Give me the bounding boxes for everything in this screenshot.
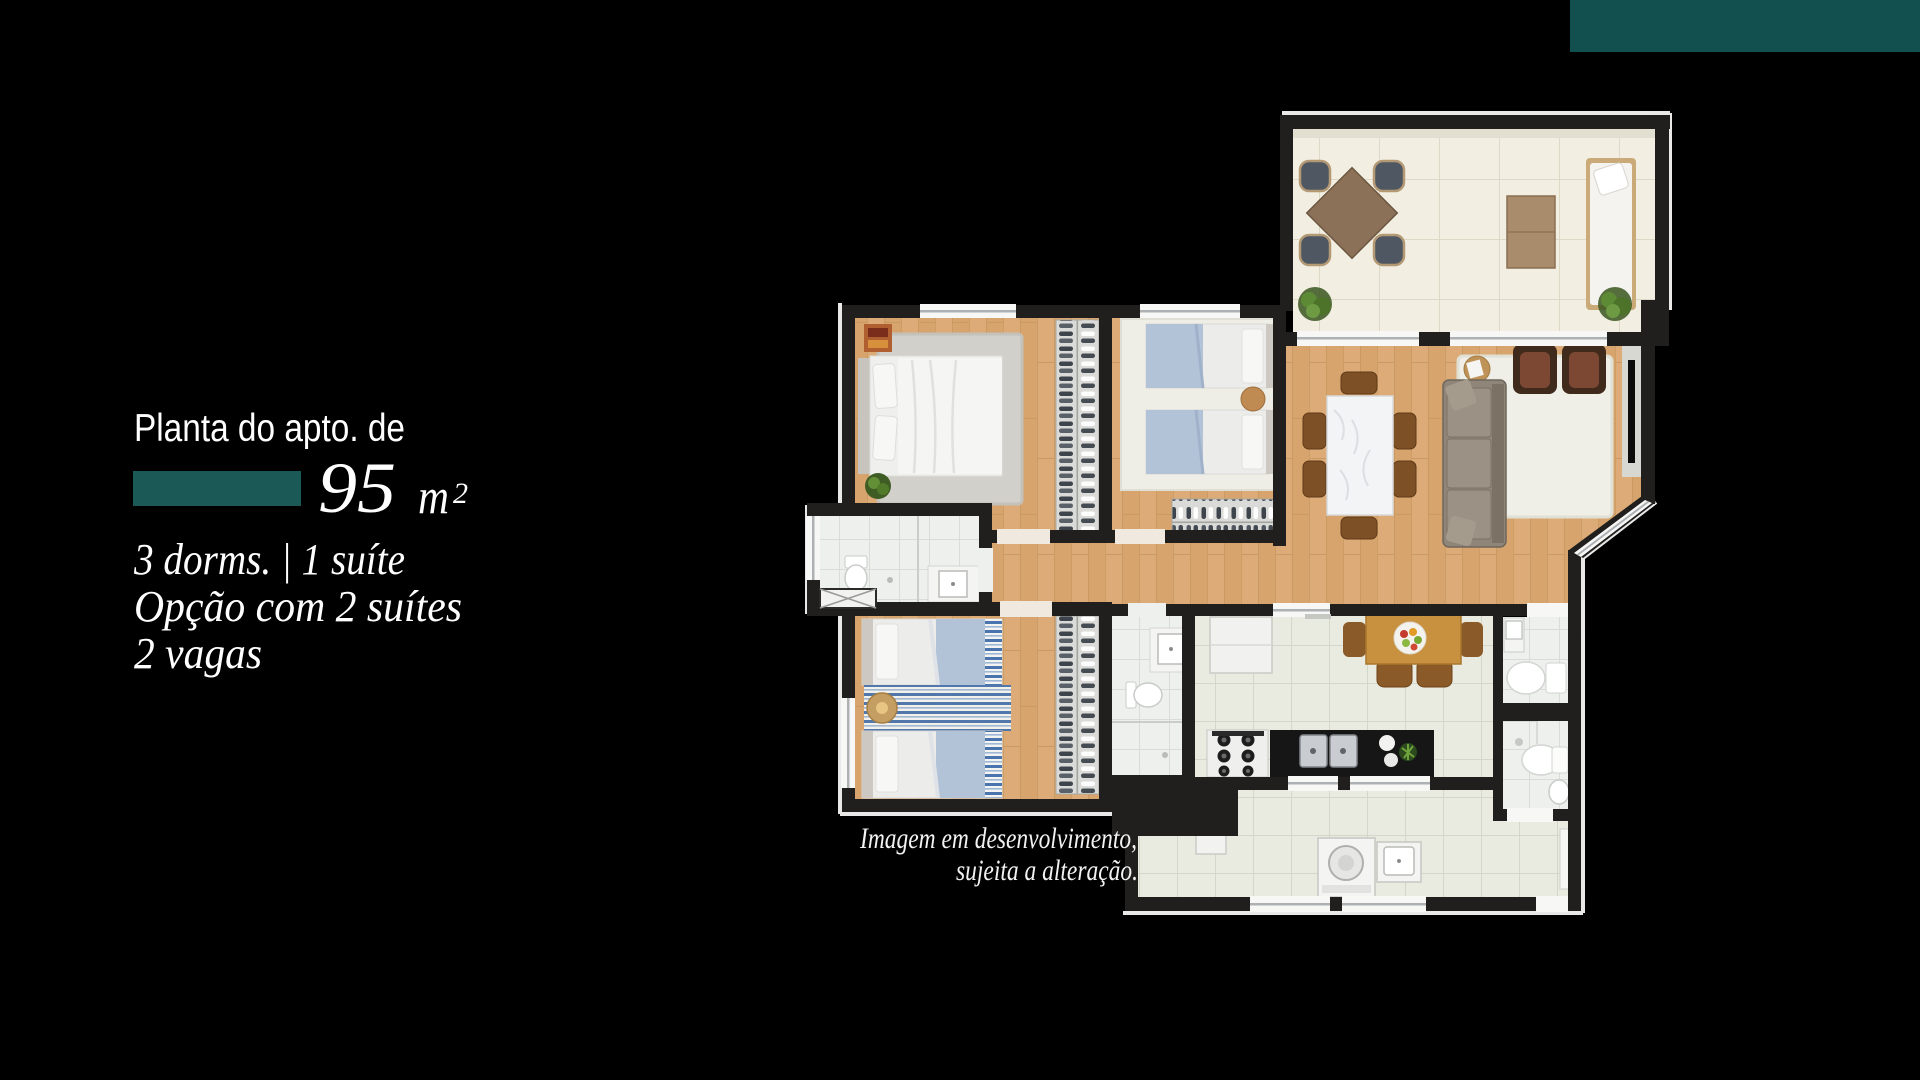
svg-text:sujeita a alteração.: sujeita a alteração. xyxy=(956,854,1138,887)
svg-text:2: 2 xyxy=(453,477,468,510)
svg-text:Imagem em desenvolvimento,: Imagem em desenvolvimento, xyxy=(859,822,1137,855)
svg-text:95: 95 xyxy=(318,448,396,528)
svg-text:3 dorms. | 1 suíte: 3 dorms. | 1 suíte xyxy=(133,535,405,584)
svg-text:2 vagas: 2 vagas xyxy=(134,629,262,678)
svg-text:Opção com 2 suítes: Opção com 2 suítes xyxy=(134,582,462,631)
svg-text:Planta do apto. de: Planta do apto. de xyxy=(134,407,405,450)
svg-text:m: m xyxy=(418,468,449,524)
